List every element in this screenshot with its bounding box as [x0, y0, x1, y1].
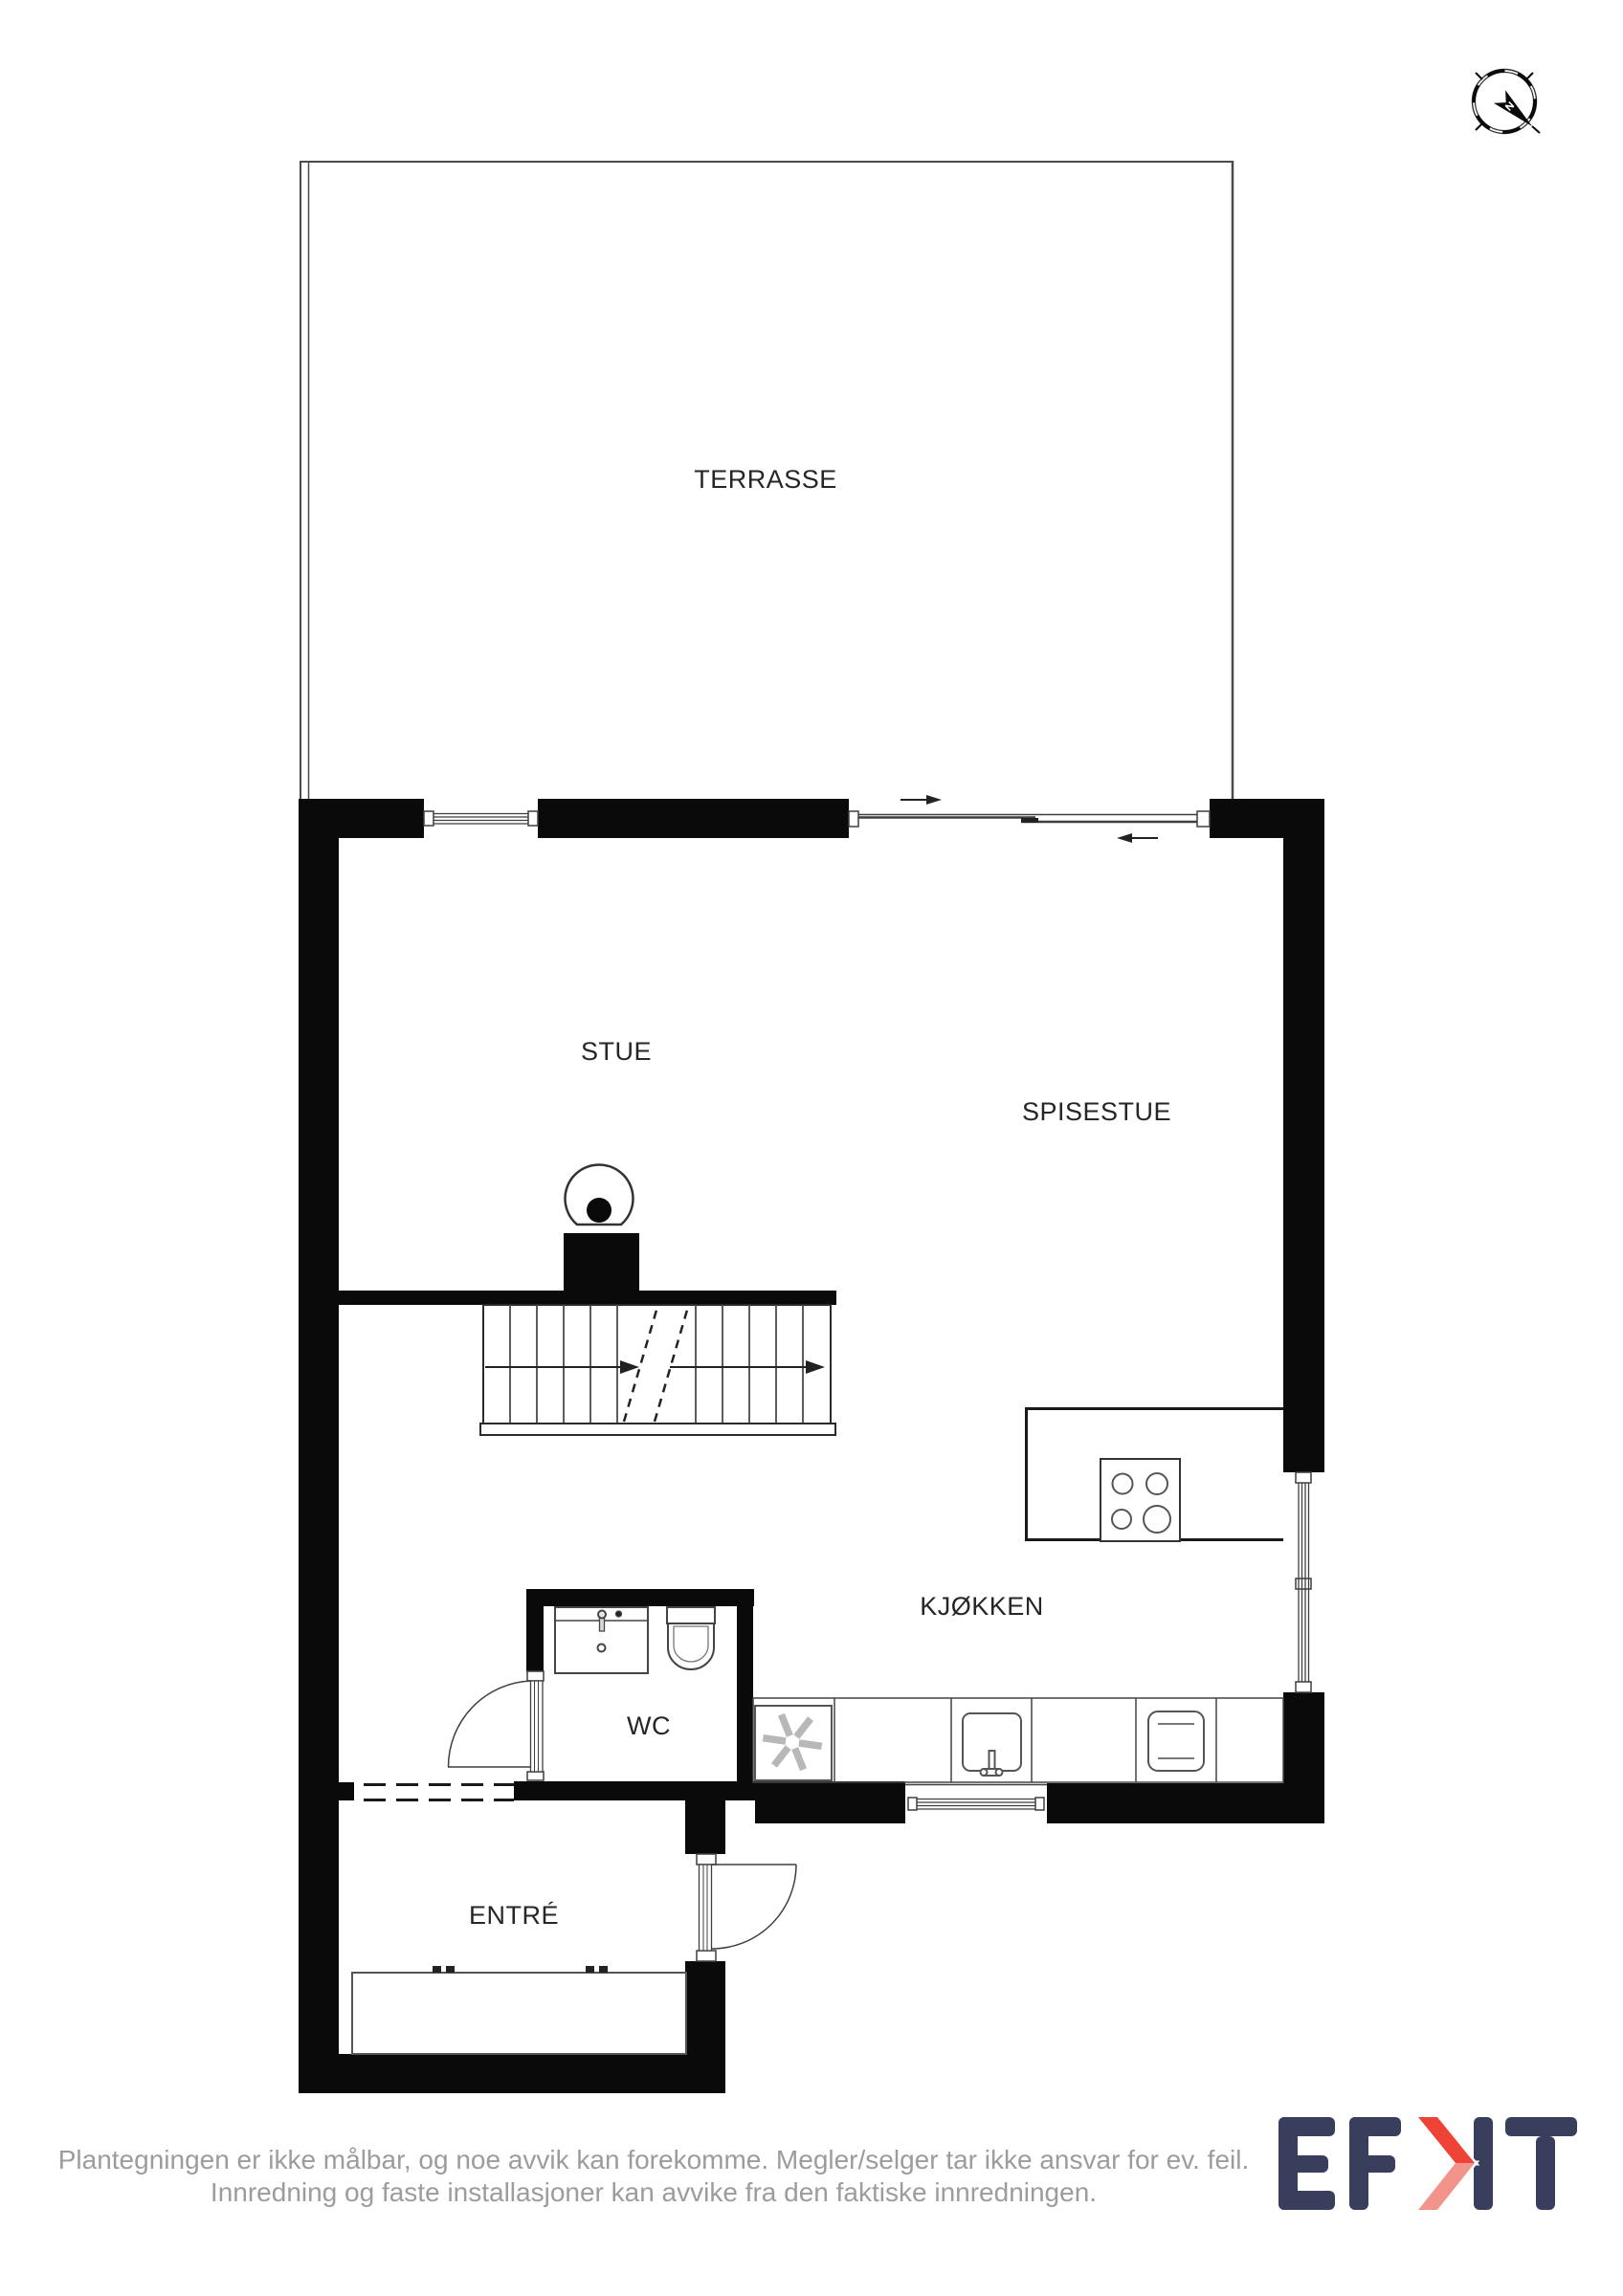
svg-text:Innredning og faste installasj: Innredning og faste installasjoner kan a…	[211, 2177, 1097, 2207]
svg-text:SPISESTUE: SPISESTUE	[1022, 1097, 1171, 1126]
svg-text:ENTRÉ: ENTRÉ	[469, 1901, 559, 1930]
svg-text:Plantegningen er ikke målbar,: Plantegningen er ikke målbar, og noe avv…	[58, 2145, 1250, 2175]
svg-text:STUE: STUE	[581, 1037, 652, 1066]
svg-text:TERRASSE: TERRASSE	[694, 465, 837, 494]
svg-text:WC: WC	[627, 1711, 671, 1740]
svg-text:KJØKKEN: KJØKKEN	[920, 1592, 1044, 1621]
